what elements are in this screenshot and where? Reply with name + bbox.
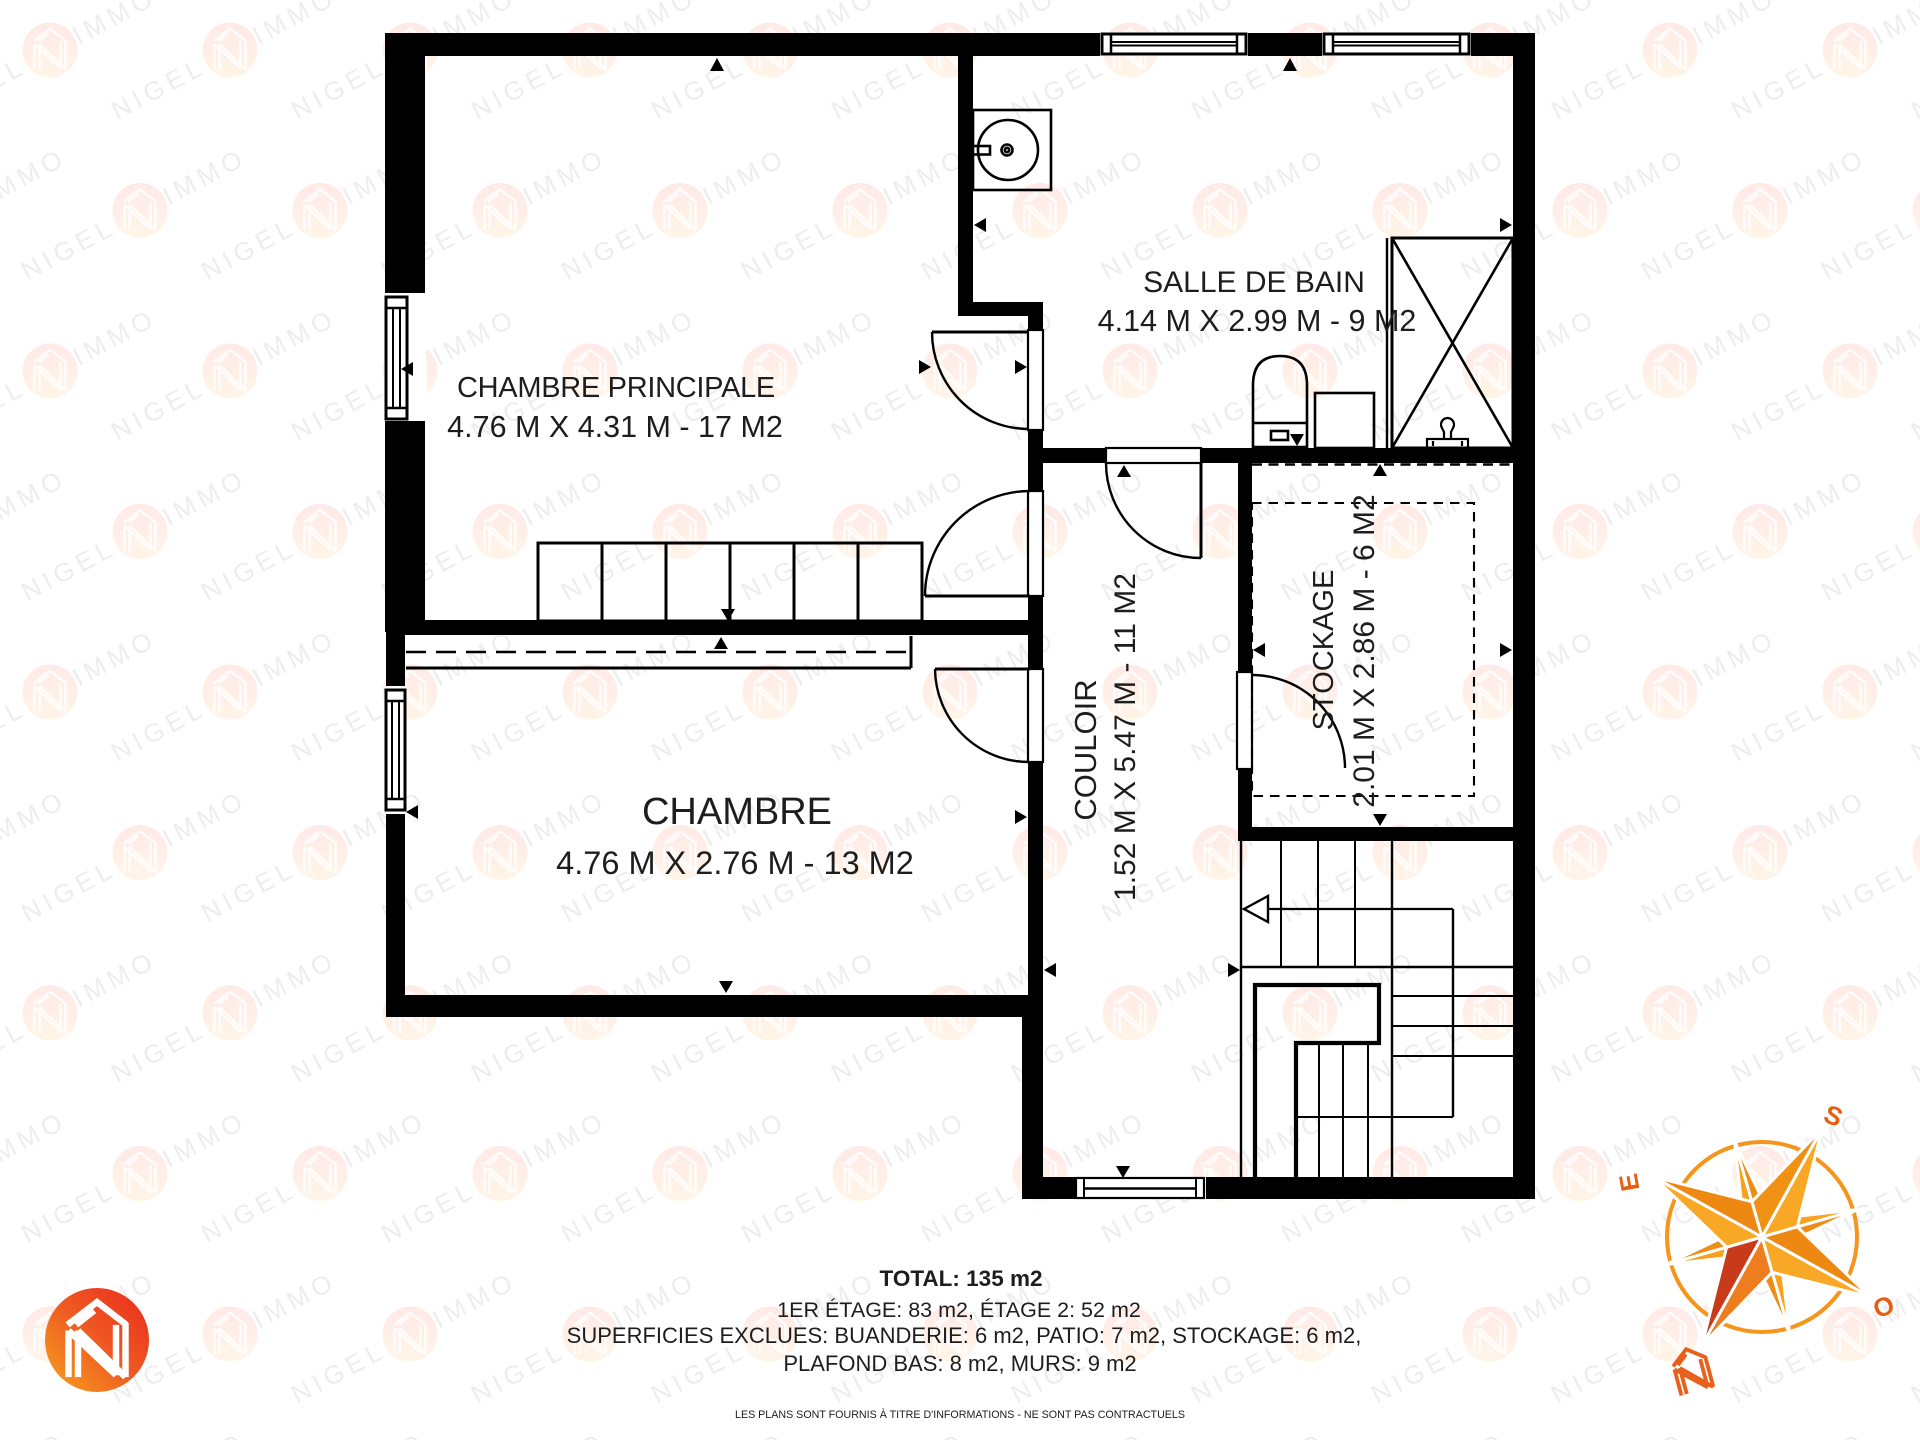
svg-text:SUPERFICIES EXCLUES: BUANDERIE: SUPERFICIES EXCLUES: BUANDERIE: 6 m2, PA… xyxy=(567,1323,1362,1348)
svg-text:COULOIR: COULOIR xyxy=(1068,679,1103,820)
svg-text:4.76 M X 2.76 M - 13 M2: 4.76 M X 2.76 M - 13 M2 xyxy=(556,845,914,881)
svg-text:PLAFOND BAS: 8 m2, MURS: 9 m2: PLAFOND BAS: 8 m2, MURS: 9 m2 xyxy=(783,1351,1136,1376)
svg-text:4.76 M X 4.31 M - 17 M2: 4.76 M X 4.31 M - 17 M2 xyxy=(447,410,783,444)
svg-text:SALLE DE BAIN: SALLE DE BAIN xyxy=(1143,266,1365,299)
svg-text:1ER ÉTAGE: 83 m2, ÉTAGE 2: 52: 1ER ÉTAGE: 83 m2, ÉTAGE 2: 52 m2 xyxy=(777,1297,1141,1322)
svg-text:CHAMBRE: CHAMBRE xyxy=(642,791,832,833)
svg-text:4.14 M X 2.99 M - 9 M2: 4.14 M X 2.99 M - 9 M2 xyxy=(1098,304,1417,338)
svg-text:1.52 M X 5.47 M - 11 M2: 1.52 M X 5.47 M - 11 M2 xyxy=(1109,573,1142,901)
svg-text:TOTAL: 135 m2: TOTAL: 135 m2 xyxy=(880,1266,1043,1291)
svg-text:LES PLANS SONT FOURNIS À TITRE: LES PLANS SONT FOURNIS À TITRE D'INFORMA… xyxy=(735,1408,1185,1421)
svg-text:STOCKAGE: STOCKAGE xyxy=(1308,570,1340,731)
svg-text:2.01 M X 2.86 M - 6 M2: 2.01 M X 2.86 M - 6 M2 xyxy=(1348,494,1381,807)
svg-text:CHAMBRE PRINCIPALE: CHAMBRE PRINCIPALE xyxy=(457,372,775,404)
